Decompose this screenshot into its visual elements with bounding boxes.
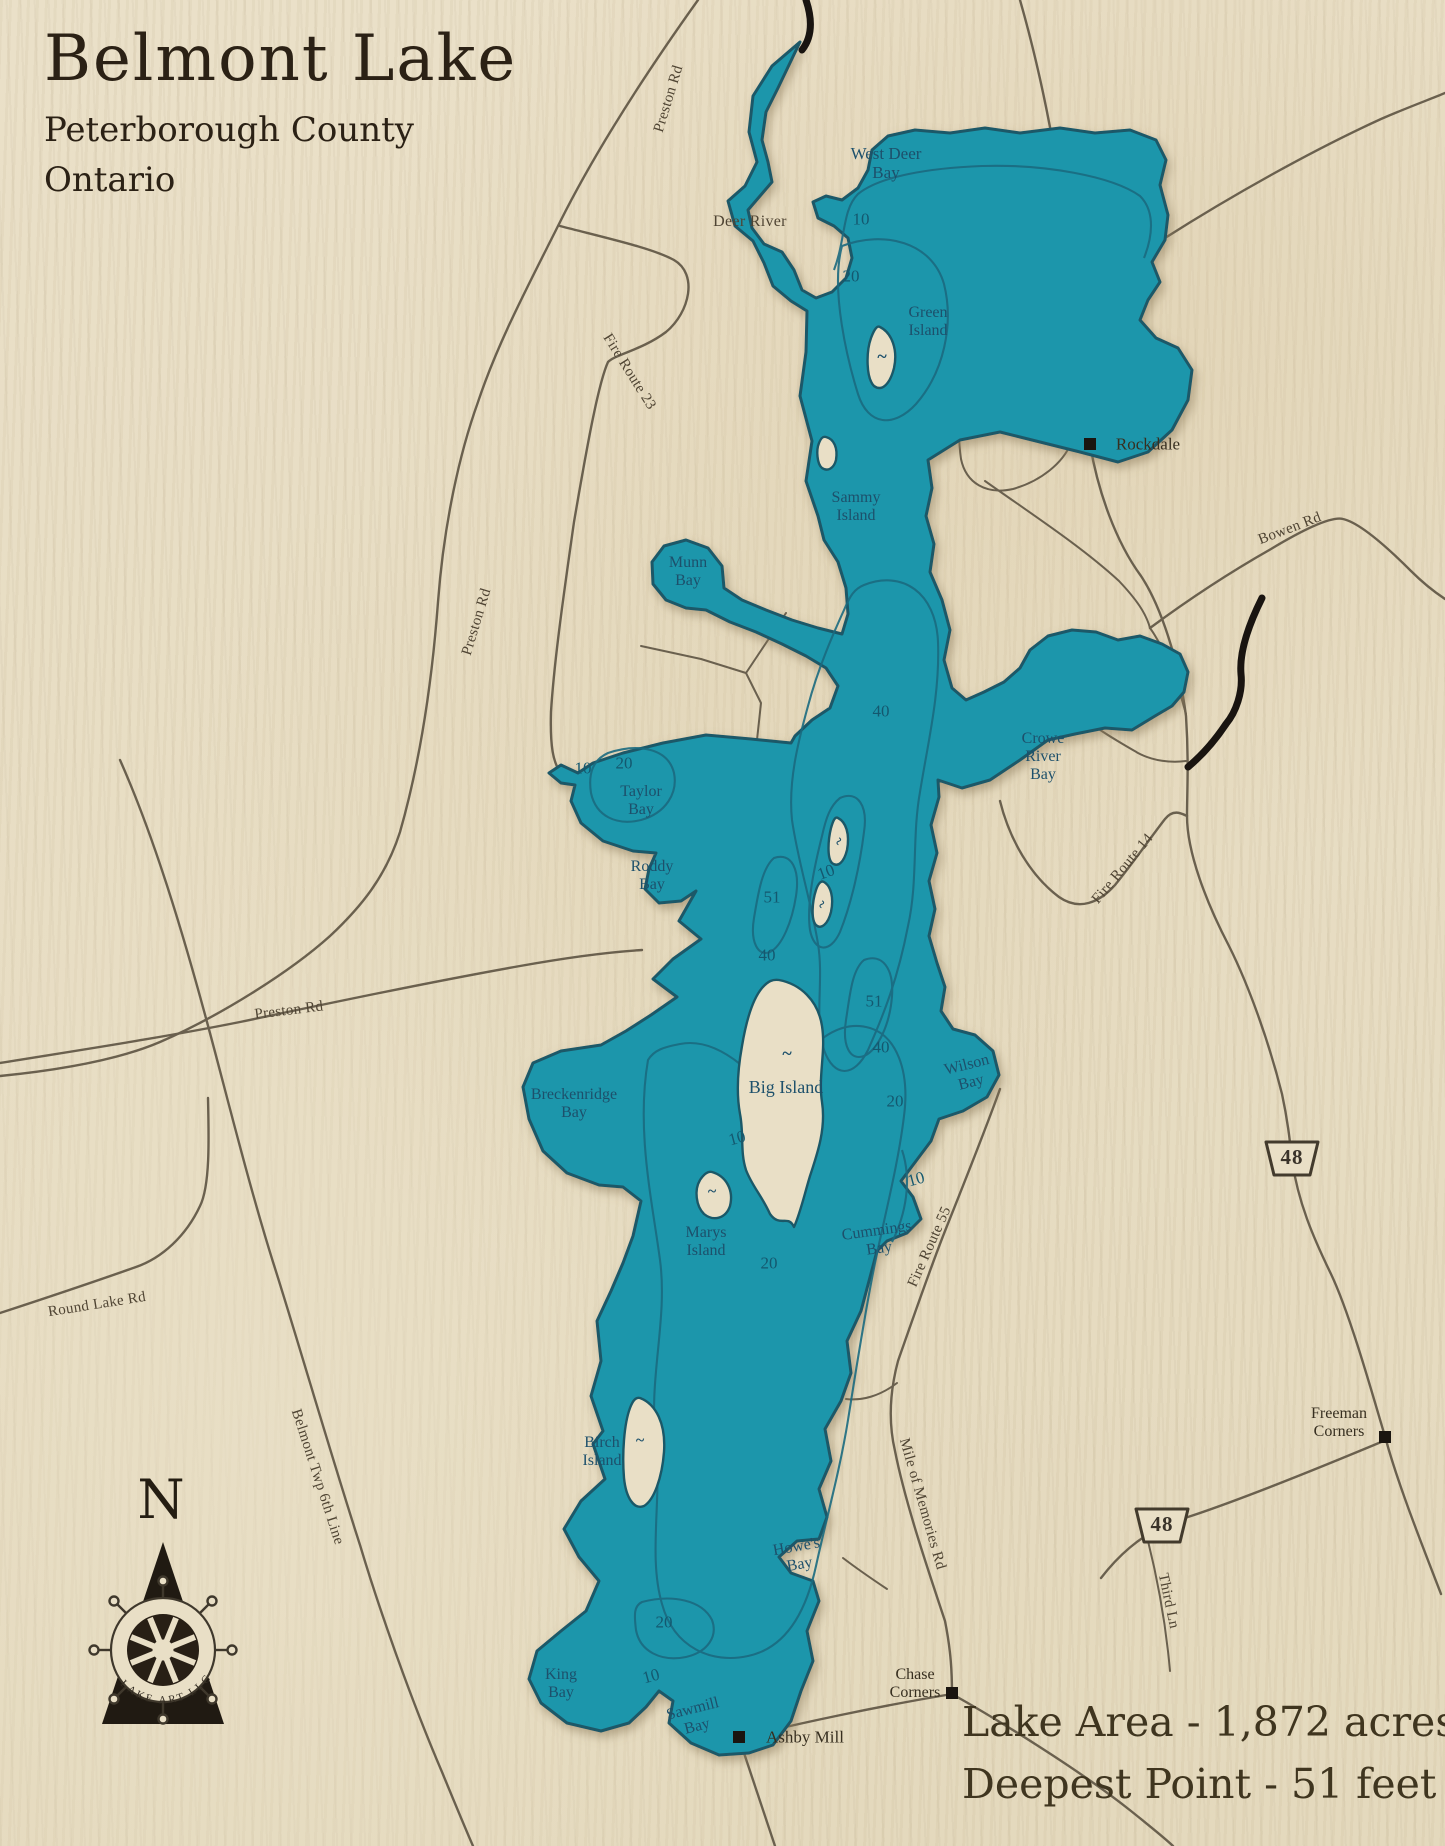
road-peninsula-a xyxy=(641,646,761,749)
road-round-lake xyxy=(0,1098,209,1313)
town-marker-chase-corners xyxy=(946,1687,958,1699)
sammy-island-shape xyxy=(817,437,836,470)
road-preston-horizontal xyxy=(0,950,642,1063)
town-marker-freeman-corners xyxy=(1379,1431,1391,1443)
mid-island-b-shape xyxy=(813,881,833,926)
crowe-river-black xyxy=(1188,598,1262,767)
shield-48-south-shape xyxy=(1136,1509,1188,1542)
shield-48-north-shape xyxy=(1266,1142,1318,1175)
lake-area-stat: Lake Area - 1,872 acres xyxy=(962,1692,1445,1754)
deer-river-inlet-black xyxy=(802,0,810,50)
lake-body xyxy=(523,42,1192,1755)
compass-rose: LAKE ART LLC xyxy=(90,1542,237,1724)
town-marker-ashby-mill xyxy=(733,1731,745,1743)
road-bowen xyxy=(1150,519,1445,628)
mid-island-a-shape xyxy=(829,818,848,865)
road-third-ln xyxy=(1148,1541,1170,1671)
highway-shields xyxy=(1136,1142,1318,1542)
road-top-right xyxy=(1165,93,1445,238)
map-subtitle-county: Peterborough County xyxy=(44,110,517,150)
title-block: Belmont Lake Peterborough County Ontario xyxy=(44,22,517,200)
lake-art-map: LAKE ART LLC West Deer BayGreen IslandSa… xyxy=(0,0,1445,1846)
road-lakeside-diagonal xyxy=(985,481,1150,628)
map-graphics: LAKE ART LLC xyxy=(0,0,1445,1846)
map-subtitle-province: Ontario xyxy=(44,160,517,200)
road-memories-spur-b xyxy=(843,1558,887,1589)
wheel-hub xyxy=(153,1640,174,1661)
town-marker-rockdale xyxy=(1084,438,1096,450)
map-title: Belmont Lake xyxy=(44,22,517,96)
road-fire-route-14 xyxy=(1000,801,1187,904)
road-fire-route-23 xyxy=(551,226,689,773)
stats-block: Lake Area - 1,872 acres Deepest Point - … xyxy=(962,1692,1445,1815)
deepest-point-stat: Deepest Point - 51 feet xyxy=(962,1754,1445,1816)
